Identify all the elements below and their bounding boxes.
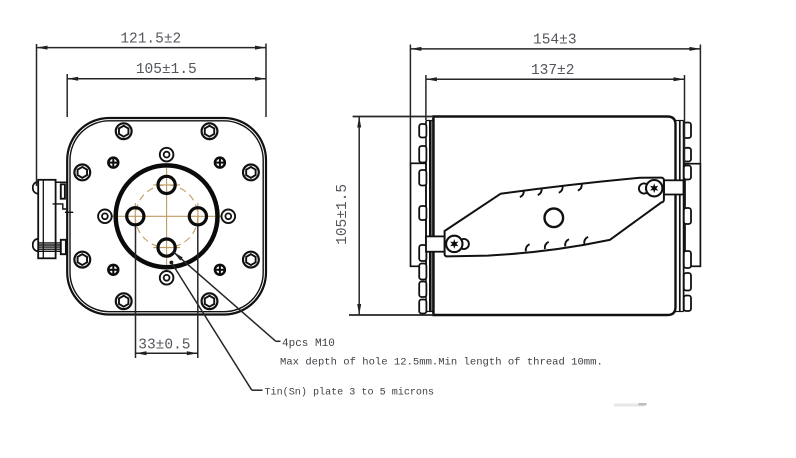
svg-text:Tin(Sn) plate 3 to 5 microns: Tin(Sn) plate 3 to 5 microns <box>265 386 435 398</box>
svg-text:4pcs M10: 4pcs M10 <box>282 338 335 350</box>
svg-text:33±0.5: 33±0.5 <box>138 338 190 354</box>
svg-text:105±1.5: 105±1.5 <box>335 184 351 245</box>
svg-text:121.5±2: 121.5±2 <box>120 31 181 47</box>
svg-text:137±2: 137±2 <box>531 63 575 79</box>
svg-text:154±3: 154±3 <box>533 32 577 48</box>
svg-text:Max depth of hole 12.5mm.Min l: Max depth of hole 12.5mm.Min length of t… <box>280 356 603 368</box>
svg-text:105±1.5: 105±1.5 <box>136 62 197 78</box>
